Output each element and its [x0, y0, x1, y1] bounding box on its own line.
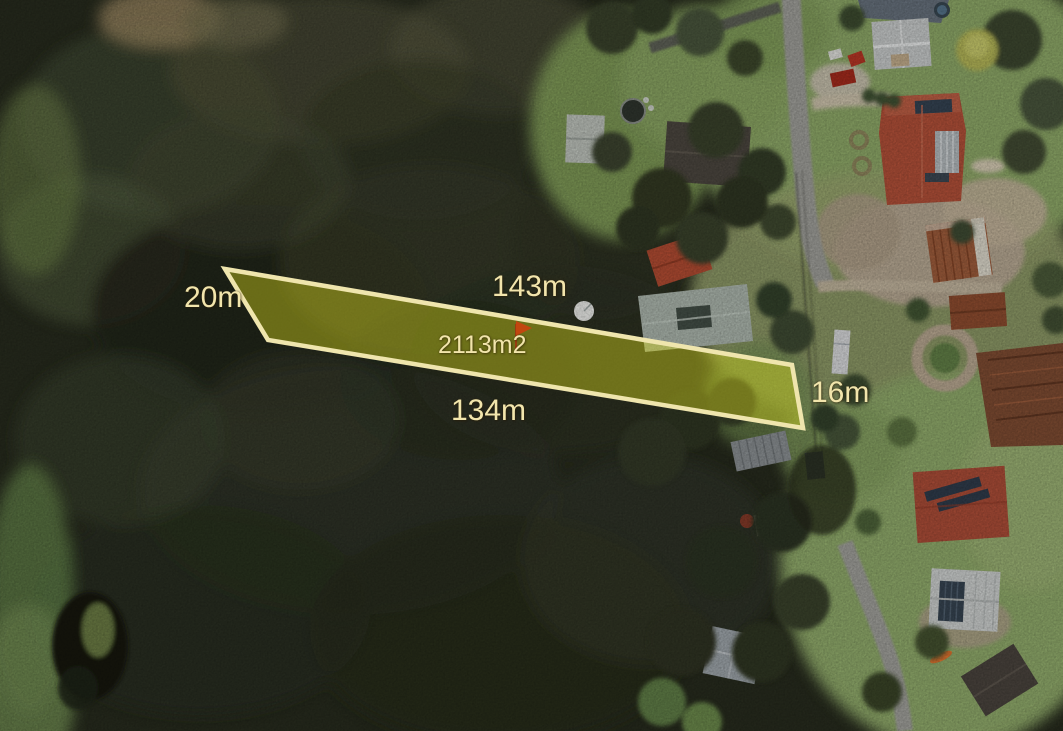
parcel-area-label: 2113m2: [438, 333, 527, 358]
aerial-map-view[interactable]: 20m 143m 2113m2 134m 16m: [0, 0, 1063, 731]
dimension-label-bottom: 134m: [451, 396, 526, 426]
dimension-label-right: 16m: [811, 378, 869, 408]
dimension-label-left: 20m: [184, 283, 242, 313]
aerial-basemap[interactable]: [0, 0, 1063, 731]
dimension-label-top: 143m: [492, 272, 567, 302]
